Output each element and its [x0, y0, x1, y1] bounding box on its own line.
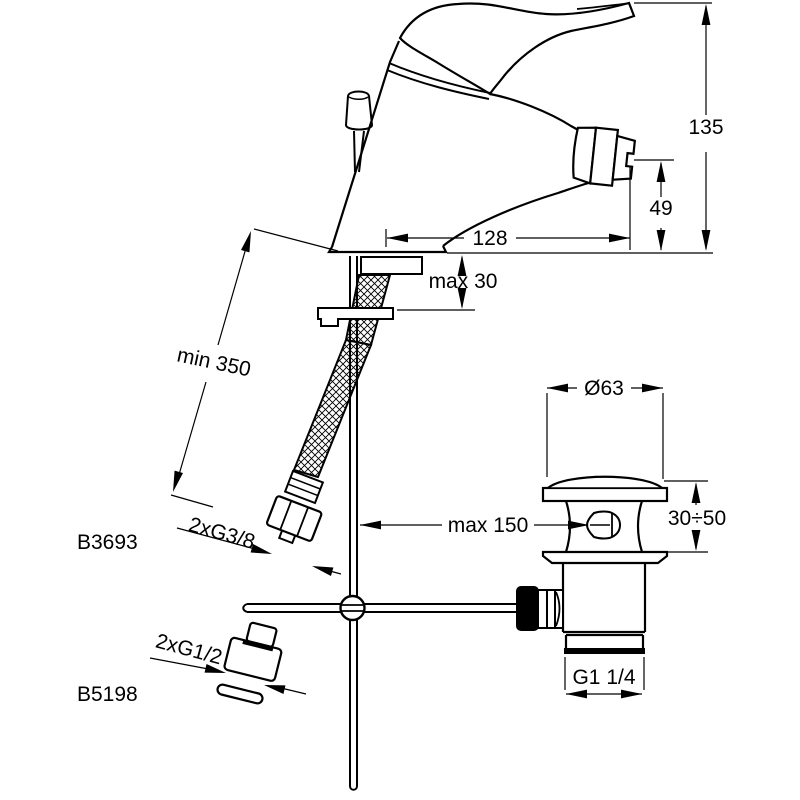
- dim-max30-label: max 30: [429, 270, 498, 293]
- dim-49-label: 49: [649, 197, 672, 220]
- product-code-mixer: B3693: [77, 531, 138, 554]
- product-code-adapter: B5198: [77, 683, 138, 706]
- waste-knurled-nut: [516, 586, 539, 631]
- drawing-background: [0, 0, 800, 800]
- dim-30-50-label: 30÷50: [668, 507, 726, 530]
- waste-lower-flange: [543, 552, 667, 563]
- waste-thread-band: [564, 648, 645, 654]
- dim-128-label: 128: [472, 227, 507, 250]
- dim-max150-label: max 150: [448, 514, 529, 537]
- shank-block: [361, 257, 422, 274]
- dim-135-label: 135: [688, 116, 723, 139]
- waste-overflow-hole: [587, 512, 620, 539]
- waste-rod-boss: [538, 590, 563, 628]
- dim-d63-label: Ø63: [584, 377, 624, 400]
- technical-drawing-canvas: 135 49 128 max 30 min 350 2xG3/8 max 150: [0, 0, 800, 800]
- rod-cross-joint: [341, 596, 365, 620]
- dim-G114-label: G1 1/4: [572, 666, 635, 689]
- waste-flange: [543, 488, 667, 501]
- technical-drawing-page: 135 49 128 max 30 min 350 2xG3/8 max 150: [0, 0, 800, 800]
